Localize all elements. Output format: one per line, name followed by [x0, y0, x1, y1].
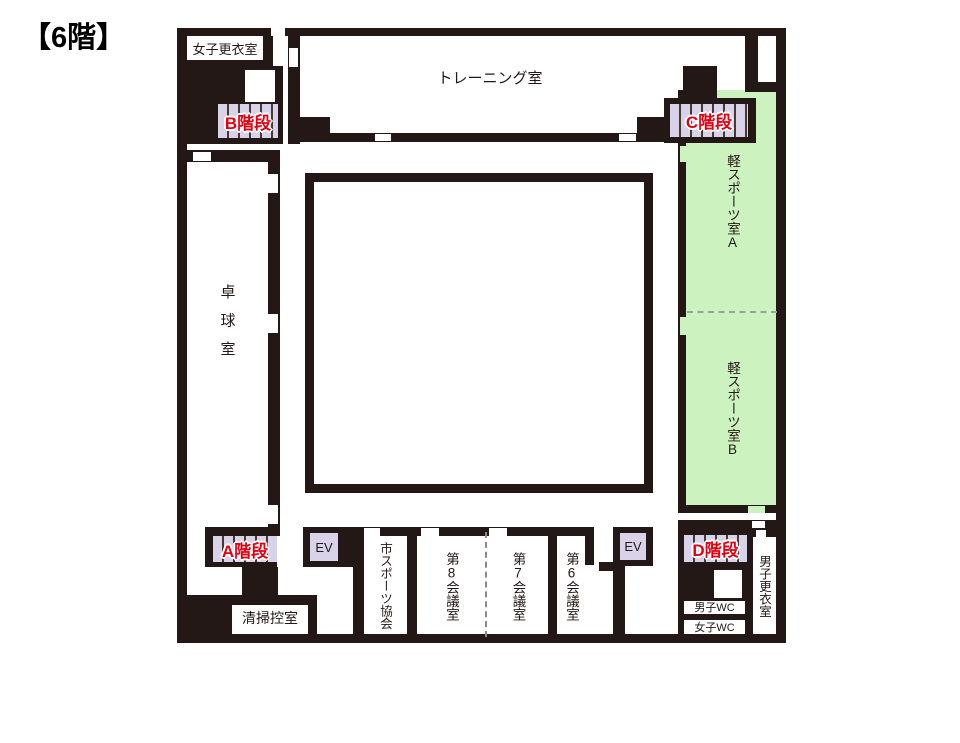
- door-opening: [289, 48, 298, 67]
- wall: [177, 595, 232, 643]
- wall: [613, 566, 625, 636]
- central-court: [305, 173, 653, 493]
- alcove: [714, 570, 742, 598]
- elevator-east: EV: [620, 533, 646, 560]
- room-label-women-wc-bottom: 女子WC: [684, 619, 745, 634]
- room-label-training: トレーニング室: [330, 64, 650, 90]
- door-opening: [752, 521, 765, 528]
- room-label-women-wc-top: 女子WC: [184, 70, 198, 142]
- door-opening: [756, 530, 766, 537]
- room-label-cleaning: 清掃控室: [232, 603, 308, 633]
- wall: [548, 527, 557, 643]
- room-label-men-changing: 男子更衣室: [753, 539, 776, 633]
- stairwell-d: D階段: [684, 535, 747, 562]
- door-opening: [271, 28, 285, 36]
- wall: [177, 28, 271, 36]
- floor-title: 【6階】: [22, 14, 125, 56]
- partition-dashed-light-sports: [687, 311, 777, 313]
- wall: [285, 28, 786, 36]
- room-label-light-sports-a: 軽スポーツ室A: [688, 98, 776, 306]
- wall: [353, 527, 364, 643]
- door-opening: [748, 506, 765, 513]
- wall: [683, 66, 717, 100]
- stair-label-a: A階段: [222, 537, 268, 562]
- door-opening: [421, 528, 439, 536]
- door-opening: [680, 317, 686, 335]
- door-opening: [364, 528, 380, 536]
- door-opening: [680, 146, 686, 162]
- wall: [678, 505, 786, 513]
- wall: [242, 567, 278, 597]
- wall: [205, 536, 213, 567]
- door-opening: [268, 314, 278, 333]
- wall: [776, 28, 786, 643]
- door-opening: [193, 152, 211, 161]
- room-label-table-tennis: 卓球室: [187, 252, 267, 402]
- room-label-sports-assoc: 市スポーツ協会: [364, 537, 407, 634]
- room-label-light-sports-b: 軽スポーツ室B: [688, 318, 776, 500]
- room-label-meeting7: 第7会議室: [487, 539, 548, 633]
- room-label-men-wc-top: 男子WC: [202, 70, 216, 142]
- wall: [308, 595, 317, 643]
- door-opening: [619, 134, 636, 141]
- door-opening: [375, 134, 391, 141]
- wall: [268, 150, 280, 535]
- room-label-men-wc-bottom: 男子WC: [684, 599, 745, 614]
- floor-plan-6f: 【6階】: [0, 0, 960, 743]
- wall: [748, 82, 786, 92]
- wall: [205, 527, 280, 536]
- wall: [177, 634, 786, 643]
- stair-label-d: D階段: [692, 536, 738, 561]
- stair-label-b: B階段: [225, 109, 271, 134]
- room-label-women-changing: 女子更衣室: [187, 36, 263, 60]
- wall: [407, 527, 417, 643]
- door-opening: [268, 505, 278, 524]
- room-label-meeting6: 第6会議室: [557, 539, 585, 633]
- door-opening: [268, 174, 278, 193]
- room-label-meeting8: 第8会議室: [417, 539, 485, 633]
- stairwell-a: A階段: [213, 536, 277, 562]
- elevator-west: EV: [310, 533, 338, 561]
- stairwell-b: B階段: [218, 104, 278, 138]
- alcove: [245, 70, 275, 102]
- door-opening: [489, 528, 507, 536]
- wall: [678, 520, 786, 529]
- wall: [288, 117, 330, 142]
- wall: [585, 527, 594, 565]
